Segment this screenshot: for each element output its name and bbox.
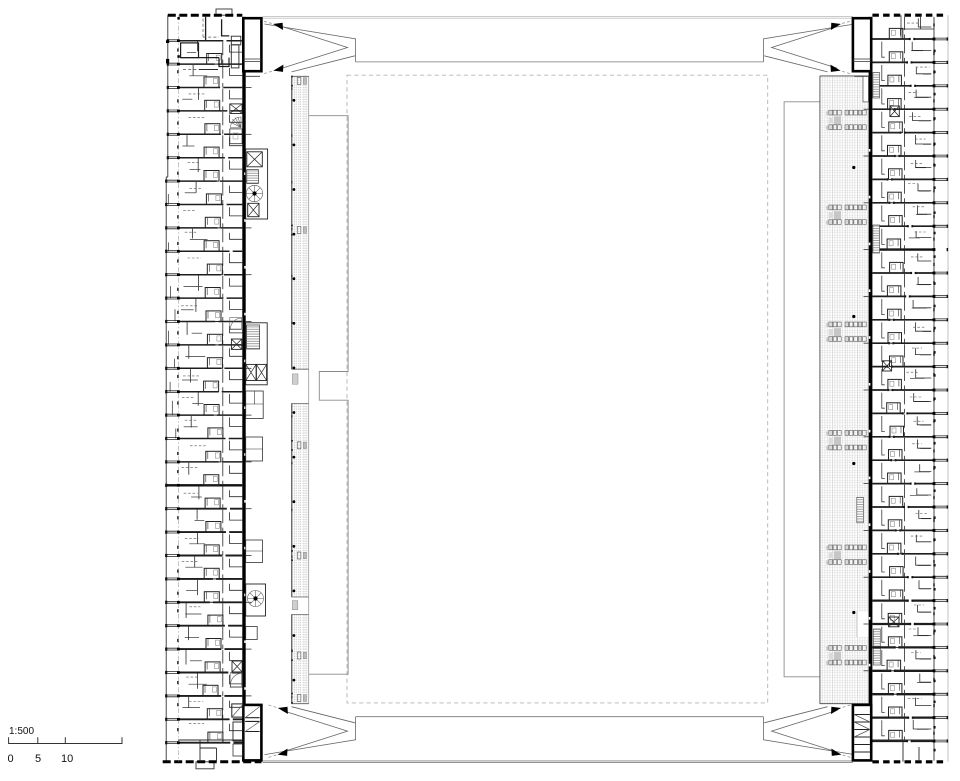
svg-text:10: 10	[61, 753, 73, 765]
svg-text:5: 5	[35, 753, 41, 765]
svg-text:1:500: 1:500	[9, 726, 34, 737]
svg-text:0: 0	[8, 753, 14, 765]
